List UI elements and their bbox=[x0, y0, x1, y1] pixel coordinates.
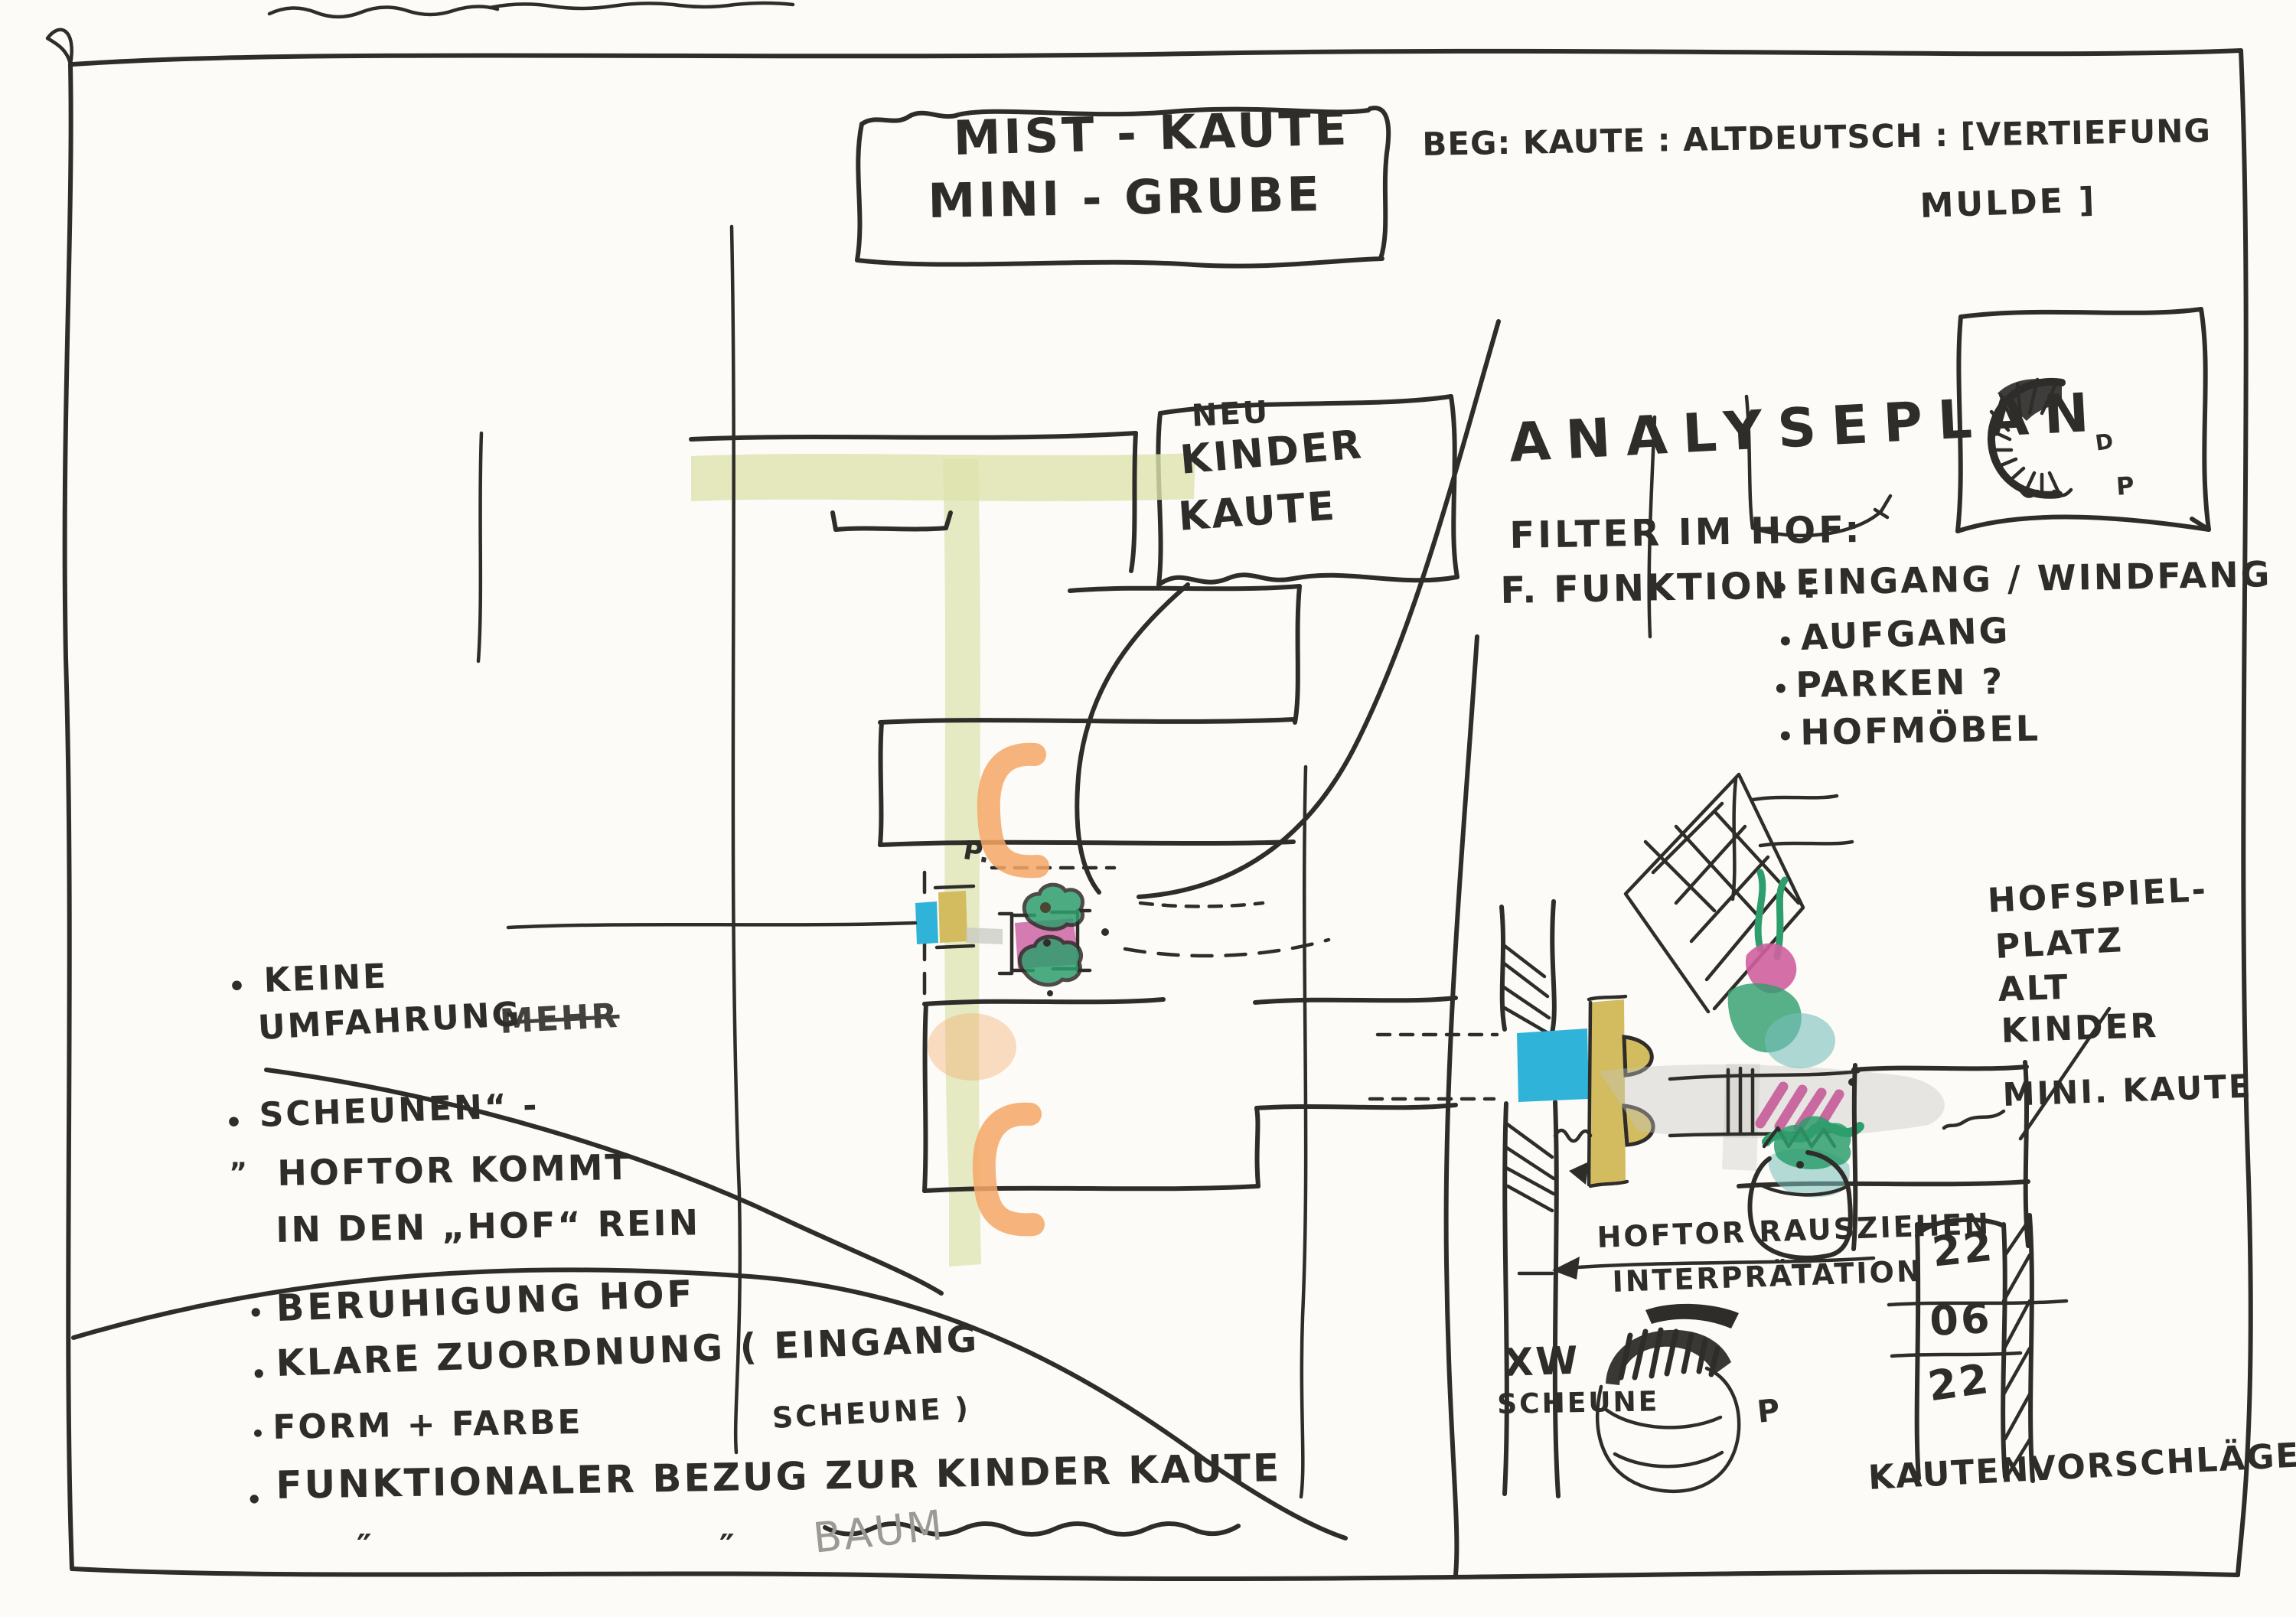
xw-label: XW bbox=[1503, 1342, 1580, 1382]
label-squiggle bbox=[1944, 1111, 2004, 1128]
bullet-icon: • bbox=[248, 1301, 266, 1325]
pergola-sketch bbox=[1626, 774, 1852, 1012]
scheune-label: SCHEUNE bbox=[1497, 1388, 1660, 1419]
hofspielplatz-line3: ALT bbox=[1998, 971, 2070, 1007]
title-line2: MINI - GRUBE bbox=[928, 171, 1322, 225]
gate-yellow bbox=[938, 891, 967, 943]
date-year: 22 bbox=[1926, 1358, 1993, 1408]
quote-mark: „ bbox=[230, 1145, 250, 1172]
bowl-p-label: P bbox=[1756, 1395, 1783, 1428]
bullet-icon: • bbox=[251, 1423, 267, 1445]
corner-sketch-letter-p: P bbox=[2115, 473, 2138, 499]
hoftor-cyan bbox=[1517, 1029, 1589, 1102]
hofspielplatz-line2: PLATZ bbox=[1994, 924, 2125, 964]
parking-label: P. bbox=[961, 837, 994, 868]
title-line1: MIST - KAUTE bbox=[953, 104, 1350, 162]
property-line bbox=[478, 433, 481, 661]
date-day: 22 bbox=[1930, 1226, 1996, 1273]
date-month: 06 bbox=[1929, 1298, 1993, 1342]
bullet-icon: • bbox=[1773, 676, 1792, 703]
path-wash bbox=[966, 927, 1003, 944]
definition-line2: MULDE ] bbox=[1919, 184, 2097, 223]
orange-building-mark bbox=[984, 1114, 1033, 1225]
bullet-icon: • bbox=[251, 1362, 269, 1387]
note-scheunen-line2: HOFTOR KOMMT bbox=[277, 1149, 631, 1191]
bullet-icon: • bbox=[225, 1110, 245, 1137]
neu-box-line1: NEU bbox=[1191, 397, 1270, 432]
analysis-subtitle: FILTER IM HOF: bbox=[1509, 511, 1863, 554]
ditto-mark: ″ bbox=[719, 1531, 737, 1564]
analysis-item-2: AUFGANG bbox=[1800, 612, 2011, 655]
bullet-icon: • bbox=[1777, 724, 1796, 750]
orange-building-mark bbox=[989, 755, 1038, 867]
teal-wash bbox=[1765, 1013, 1835, 1068]
hofspielplatz-line4: KINDER bbox=[2001, 1009, 2159, 1048]
analysis-item-4: HOFMÖBEL bbox=[1800, 711, 2040, 750]
analysis-item-1: EINGANG / WINDFANG bbox=[1795, 556, 2272, 600]
sketch-page: MIST - KAUTE MINI - GRUBE BEG: KAUTE : A… bbox=[0, 0, 2296, 1617]
ditto-mark: ″ bbox=[357, 1531, 374, 1564]
bullet-icon: • bbox=[246, 1488, 264, 1512]
mini-kaute-label: MINI. KAUTE bbox=[2002, 1071, 2253, 1111]
orange-wash bbox=[928, 1013, 1016, 1081]
note-scheunen-line1: SCHEUNEN“ - bbox=[259, 1089, 540, 1133]
note-keine-struck-word: MEHR bbox=[499, 999, 621, 1039]
corner-sketch-letter-d: D bbox=[2094, 430, 2117, 454]
tree bbox=[1024, 885, 1082, 929]
note-keine-line1: KEINE bbox=[263, 960, 389, 998]
scan-squiggle bbox=[269, 6, 497, 17]
property-line bbox=[732, 227, 740, 1452]
neu-box-line3: KAUTE bbox=[1177, 487, 1338, 537]
analysis-item-3: PARKEN ? bbox=[1795, 663, 2005, 703]
scan-squiggle bbox=[490, 3, 793, 8]
analysis-function-label: F. FUNKTION : bbox=[1500, 567, 1819, 609]
bullet-icon: • bbox=[228, 973, 248, 1001]
gate-cyan bbox=[915, 901, 938, 944]
bullet-icon: • bbox=[1777, 629, 1796, 655]
bullet-icon: • bbox=[1773, 575, 1792, 601]
note-scheunen-line3: IN DEN „HOF“ REIN bbox=[276, 1205, 700, 1247]
note-form-farbe: FORM + FARBE bbox=[272, 1406, 583, 1445]
